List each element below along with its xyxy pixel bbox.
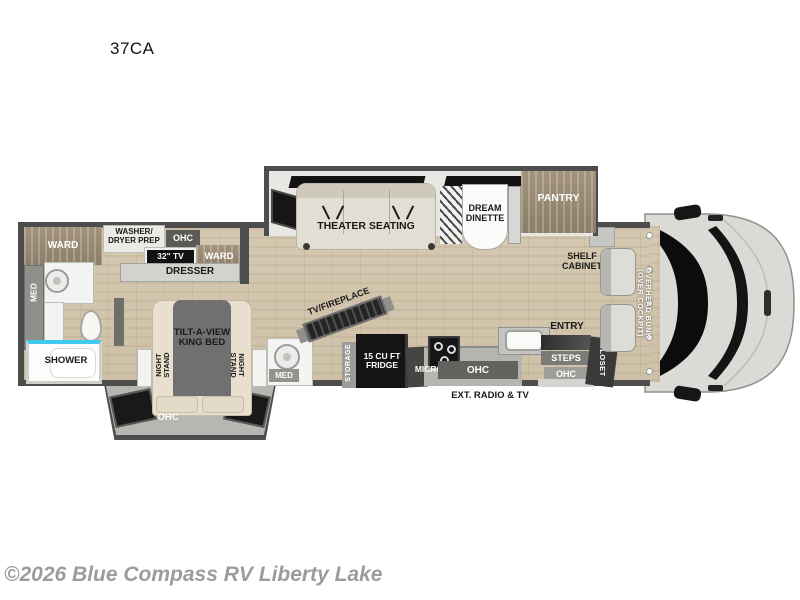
bunk-trim-dot (646, 232, 653, 239)
ohc-bed-slide-label: OHC (144, 413, 192, 423)
entry-label: ENTRY (543, 322, 591, 333)
sofa-leg-dot (303, 243, 310, 250)
ext-radio-tv-label: EXT. RADIO & TV (448, 391, 532, 401)
pillow-right (202, 396, 244, 413)
faucet-icon (536, 338, 540, 342)
dresser-label: DRESSER (140, 267, 240, 278)
roof-marker-top (708, 215, 723, 221)
ward-bedroom-label: WARD (196, 252, 242, 262)
entry-landing (541, 335, 591, 350)
seat-back (601, 305, 611, 351)
theater-seating-label: THEATER SEATING (298, 221, 434, 232)
bunk-trim-dot (646, 368, 653, 375)
burner-icon (447, 345, 456, 354)
tv-32-label: 32" TV (147, 252, 194, 261)
roof-marker-bottom (708, 385, 723, 391)
overhead-bunk-label: OVERHEAD BUNK(OVER COCKPIT) (636, 243, 652, 363)
sofa-leg-dot (428, 243, 435, 250)
washer-dryer-label: WASHER/DRYER PREP (101, 228, 167, 245)
vanity-sink (274, 344, 300, 370)
night-stand-right (252, 349, 267, 387)
passenger-seat (600, 304, 636, 352)
night-stand-left-label: NIGHTSTAND (155, 335, 171, 395)
ohc-kitchen-label: OHC (438, 366, 518, 377)
dream-dinette-label: DREAMDINETTE (460, 204, 510, 223)
bath-counter-leg (44, 302, 64, 342)
front-grille (764, 290, 771, 316)
ward-rear-label: WARD (48, 241, 79, 252)
night-stand-right-label: NIGHTSTAND (229, 335, 245, 395)
driver-seat (600, 248, 636, 296)
bath-sink (45, 269, 69, 293)
night-stand-left (137, 349, 152, 387)
theater-seating-sofa (296, 183, 436, 250)
steps-label: STEPS (541, 354, 591, 364)
sofa-back (297, 184, 435, 198)
bath-partition-wall (114, 298, 124, 346)
burner-icon (434, 342, 443, 351)
ohc-bedroom-label: OHC (166, 234, 200, 244)
fridge-label: 15 CU FTFRIDGE (356, 352, 408, 370)
seat-back (601, 249, 611, 295)
med-vanity-label: MED (269, 372, 299, 381)
med-bath-label: MED (29, 268, 38, 318)
ward-cabinet-rear: WARD (24, 227, 102, 265)
dinette-bench-left (440, 186, 462, 244)
pantry-label: PANTRY (521, 193, 596, 204)
toilet (80, 310, 102, 342)
pillow-left (156, 396, 198, 413)
watermark: ©2026 Blue Compass RV Liberty Lake (4, 564, 434, 587)
bedroom-partition-wall (240, 222, 249, 284)
page-title: 37CA (110, 40, 155, 58)
storage-label: STORAGE (345, 333, 353, 393)
shower-label: SHOWER (36, 356, 96, 366)
